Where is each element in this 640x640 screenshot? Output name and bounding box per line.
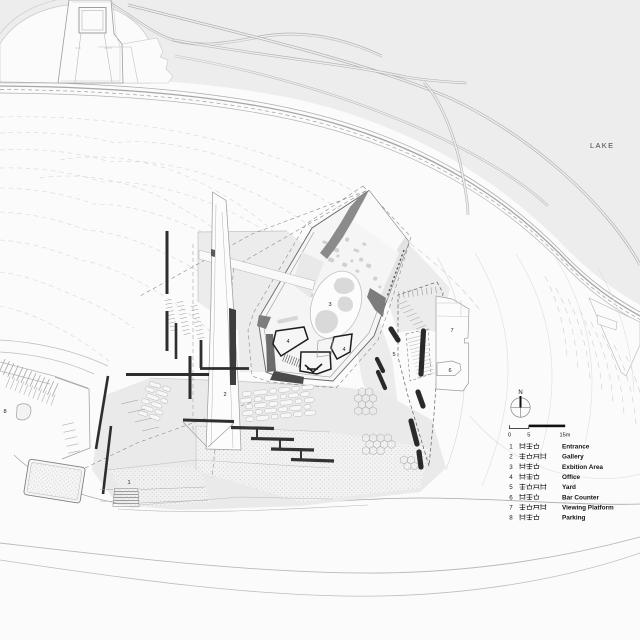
- svg-text:7: 7: [450, 328, 453, 334]
- svg-text:4: 4: [509, 474, 513, 481]
- svg-text:Viewing Platform: Viewing Platform: [562, 505, 614, 512]
- svg-text:Office: Office: [562, 474, 581, 481]
- svg-text:6: 6: [448, 368, 451, 374]
- svg-text:5: 5: [509, 484, 513, 491]
- svg-text:1: 1: [509, 444, 513, 451]
- svg-text:3: 3: [509, 464, 513, 471]
- svg-text:Gallery: Gallery: [562, 454, 584, 461]
- svg-text:0: 0: [508, 433, 511, 439]
- svg-text:7: 7: [509, 505, 513, 512]
- svg-text:Entrance: Entrance: [562, 444, 590, 451]
- svg-text:1: 1: [127, 480, 130, 486]
- svg-text:8: 8: [509, 515, 513, 522]
- svg-text:2: 2: [509, 454, 513, 461]
- svg-text:Parking: Parking: [562, 515, 586, 522]
- svg-text:2: 2: [223, 392, 226, 398]
- svg-text:8: 8: [3, 409, 6, 415]
- svg-text:3: 3: [328, 302, 331, 308]
- svg-text:N: N: [518, 390, 522, 396]
- svg-text:5: 5: [527, 433, 530, 439]
- svg-text:4: 4: [342, 347, 345, 353]
- svg-text:LAKE: LAKE: [590, 141, 614, 150]
- svg-text:15m: 15m: [560, 433, 571, 439]
- svg-text:5: 5: [392, 352, 395, 358]
- svg-text:Yard: Yard: [562, 484, 576, 491]
- svg-text:Exbition Area: Exbition Area: [562, 464, 603, 471]
- svg-text:6: 6: [509, 494, 513, 501]
- svg-text:4: 4: [286, 339, 289, 345]
- svg-text:Bar Counter: Bar Counter: [562, 494, 599, 501]
